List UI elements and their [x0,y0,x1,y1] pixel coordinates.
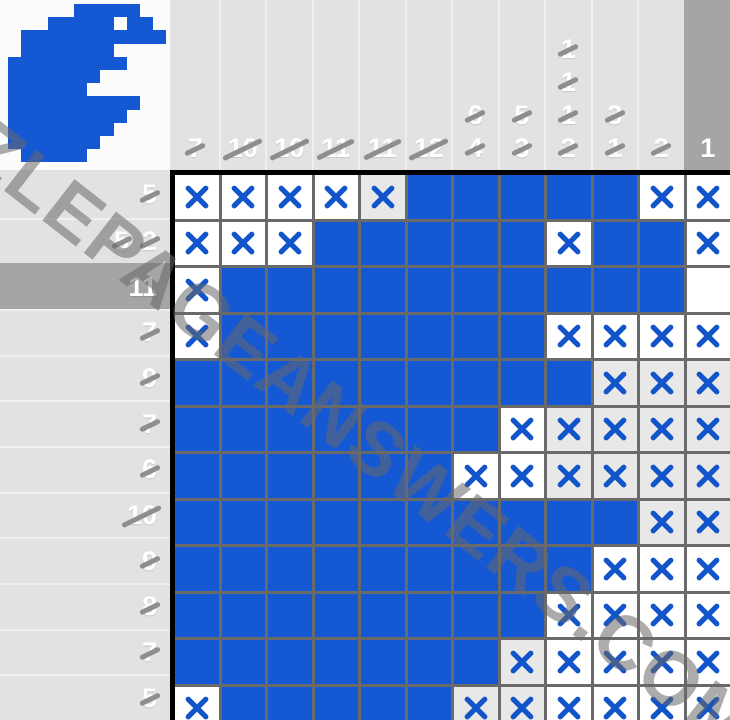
preview-pixel [74,83,87,96]
cell-r12-c6[interactable] [408,687,452,720]
cell-r12-c9[interactable] [547,687,591,720]
preview-pixel [61,83,74,96]
cell-r10-c3[interactable] [268,594,312,638]
x-mark-icon [600,321,630,351]
clue-number: 9 [142,548,157,575]
cell-r8-c6[interactable] [408,501,452,545]
preview-pixel [34,83,47,96]
cell-r8-c11[interactable] [640,501,684,545]
column-clue-4: 11 [312,0,359,170]
preview-pixel [8,136,21,149]
preview-pixel [34,96,47,109]
cell-r5-c3[interactable] [268,361,312,405]
cell-r5-c4[interactable] [315,361,359,405]
column-clue-11: 2 [637,0,684,170]
preview-pixel [21,44,34,57]
preview-pixel [114,4,127,17]
cell-r2-c12[interactable] [687,222,730,266]
cell-r3-c12[interactable] [687,268,730,312]
cell-r1-c6[interactable] [408,175,452,219]
preview-pixel [21,136,34,149]
cell-r6-c5[interactable] [361,408,405,452]
cell-r1-c8[interactable] [501,175,545,219]
preview-pixel [48,136,61,149]
cell-r5-c10[interactable] [594,361,638,405]
clue-number: 10 [228,135,258,162]
preview-pixel [48,123,61,136]
cell-r7-c10[interactable] [594,454,638,498]
x-mark-icon [461,461,491,491]
preview-pixel [21,30,34,43]
preview-pixel [114,110,127,123]
column-clue-7: 64 [451,0,498,170]
x-mark-icon [647,321,677,351]
clue-number: 1 [561,102,576,129]
cell-r7-c5[interactable] [361,454,405,498]
x-mark-icon [600,600,630,630]
cell-r8-c7[interactable] [454,501,498,545]
cell-r6-c6[interactable] [408,408,452,452]
cell-r5-c1[interactable] [175,361,219,405]
preview-pixel [100,123,113,136]
clue-number: 4 [468,135,483,162]
cell-r7-c1[interactable] [175,454,219,498]
cell-r7-c12[interactable] [687,454,730,498]
clue-number: 3 [607,102,622,129]
cell-r8-c10[interactable] [594,501,638,545]
cell-r4-c3[interactable] [268,315,312,359]
cell-r2-c10[interactable] [594,222,638,266]
row-clue-10: 8 [0,583,170,629]
cell-r12-c10[interactable] [594,687,638,720]
preview-pixel [74,149,87,162]
cell-r12-c8[interactable] [501,687,545,720]
preview-pixel [21,70,34,83]
preview-pixel [87,4,100,17]
preview-pixel [61,123,74,136]
preview-pixel [74,17,87,30]
cell-r3-c1[interactable] [175,268,219,312]
cell-r10-c11[interactable] [640,594,684,638]
preview-pixel [74,96,87,109]
x-mark-icon [554,321,584,351]
preview-pixel [8,110,21,123]
cell-r4-c7[interactable] [454,315,498,359]
cell-r9-c3[interactable] [268,547,312,591]
cell-r3-c2[interactable] [222,268,266,312]
cell-r2-c7[interactable] [454,222,498,266]
x-mark-icon [647,554,677,584]
clue-number: 8 [142,593,157,620]
x-mark-icon [693,182,723,212]
cell-r2-c8[interactable] [501,222,545,266]
cell-r5-c6[interactable] [408,361,452,405]
x-mark-icon [600,647,630,677]
row-clue-5: 9 [0,355,170,401]
cell-r6-c11[interactable] [640,408,684,452]
column-clue-1: 7 [172,0,219,170]
cell-r6-c2[interactable] [222,408,266,452]
cell-r3-c9[interactable] [547,268,591,312]
preview-pixel [100,30,113,43]
clue-number: 3 [514,135,529,162]
picture-cross-puzzle-screen: 71010111112645311123121 552117976109875 … [0,0,730,720]
preview-pixel [34,110,47,123]
cell-r12-c5[interactable] [361,687,405,720]
preview-pixel [140,17,153,30]
x-mark-icon [554,647,584,677]
preview-pixel [87,17,100,30]
cell-r8-c9[interactable] [547,501,591,545]
cell-r8-c12[interactable] [687,501,730,545]
preview-pixel [61,30,74,43]
cell-r10-c8[interactable] [501,594,545,638]
cell-r4-c1[interactable] [175,315,219,359]
clue-number: 7 [142,639,157,666]
clue-number: 9 [142,365,157,392]
preview-pixel [87,136,100,149]
preview-pixel [61,44,74,57]
cell-r4-c2[interactable] [222,315,266,359]
cell-r9-c1[interactable] [175,547,219,591]
clue-number: 11 [128,274,157,301]
cell-r7-c7[interactable] [454,454,498,498]
clue-number: 5 [142,685,157,712]
cell-r1-c9[interactable] [547,175,591,219]
cell-r11-c7[interactable] [454,640,498,684]
x-mark-icon [647,507,677,537]
cell-r11-c3[interactable] [268,640,312,684]
cell-r8-c8[interactable] [501,501,545,545]
cell-r2-c1[interactable] [175,222,219,266]
preview-pixel [34,57,47,70]
x-mark-icon [368,182,398,212]
column-clue-3: 10 [265,0,312,170]
x-mark-icon [693,461,723,491]
cell-r7-c9[interactable] [547,454,591,498]
clue-number: 7 [142,319,157,346]
x-mark-icon [228,182,258,212]
cell-r4-c6[interactable] [408,315,452,359]
row-clue-1: 5 [0,172,170,218]
cell-r9-c8[interactable] [501,547,545,591]
x-mark-icon [693,554,723,584]
preview-pixel [74,136,87,149]
cell-r12-c7[interactable] [454,687,498,720]
cell-r2-c9[interactable] [547,222,591,266]
cell-r8-c3[interactable] [268,501,312,545]
x-mark-icon [554,693,584,720]
x-mark-icon [647,461,677,491]
cell-r5-c8[interactable] [501,361,545,405]
cell-r11-c8[interactable] [501,640,545,684]
cell-r5-c7[interactable] [454,361,498,405]
cell-r8-c1[interactable] [175,501,219,545]
cell-r5-c11[interactable] [640,361,684,405]
cell-r3-c8[interactable] [501,268,545,312]
x-mark-icon [182,275,212,305]
cell-r10-c5[interactable] [361,594,405,638]
x-mark-icon [647,368,677,398]
cell-r11-c6[interactable] [408,640,452,684]
clue-number: 5 [514,102,529,129]
preview-pixel [48,57,61,70]
x-mark-icon [182,321,212,351]
cell-r12-c12[interactable] [687,687,730,720]
column-clue-6: 12 [405,0,452,170]
preview-pixel [100,96,113,109]
preview-pixel [34,136,47,149]
preview-pixel [21,57,34,70]
preview-pixel [100,110,113,123]
cell-r5-c5[interactable] [361,361,405,405]
cell-r9-c12[interactable] [687,547,730,591]
preview-pixel [48,96,61,109]
cell-r1-c4[interactable] [315,175,359,219]
cell-r4-c12[interactable] [687,315,730,359]
preview-pixel [74,57,87,70]
row-clues-header: 552117976109875 [0,172,170,720]
preview-pixel [74,4,87,17]
preview-pixel [127,4,140,17]
cell-r10-c7[interactable] [454,594,498,638]
cell-r10-c9[interactable] [547,594,591,638]
cell-r6-c7[interactable] [454,408,498,452]
cell-r5-c9[interactable] [547,361,591,405]
cell-r4-c4[interactable] [315,315,359,359]
cell-r2-c3[interactable] [268,222,312,266]
preview-pixel [61,136,74,149]
clue-number: 11 [321,135,350,162]
cell-r2-c11[interactable] [640,222,684,266]
cell-r9-c9[interactable] [547,547,591,591]
cell-r4-c8[interactable] [501,315,545,359]
preview-pixel [114,57,127,70]
cell-r12-c3[interactable] [268,687,312,720]
cell-r10-c1[interactable] [175,594,219,638]
cell-r4-c10[interactable] [594,315,638,359]
cell-r11-c9[interactable] [547,640,591,684]
clue-number: 1 [561,36,576,63]
cell-r6-c1[interactable] [175,408,219,452]
cell-r11-c12[interactable] [687,640,730,684]
column-clue-9: 1112 [544,0,591,170]
cell-r7-c2[interactable] [222,454,266,498]
cell-r4-c9[interactable] [547,315,591,359]
preview-pixel [114,96,127,109]
cell-r4-c5[interactable] [361,315,405,359]
x-mark-icon [600,461,630,491]
cell-r1-c7[interactable] [454,175,498,219]
cell-r10-c12[interactable] [687,594,730,638]
cell-r3-c10[interactable] [594,268,638,312]
column-clue-5: 11 [358,0,405,170]
cell-r2-c6[interactable] [408,222,452,266]
cell-r7-c6[interactable] [408,454,452,498]
cell-r11-c4[interactable] [315,640,359,684]
cell-r2-c5[interactable] [361,222,405,266]
preview-pixel [61,149,74,162]
cell-r9-c11[interactable] [640,547,684,591]
cell-r7-c4[interactable] [315,454,359,498]
preview-pixel [100,44,113,57]
preview-pixel [21,83,34,96]
preview-pixel [87,57,100,70]
cell-r12-c4[interactable] [315,687,359,720]
cell-r3-c5[interactable] [361,268,405,312]
cell-r3-c7[interactable] [454,268,498,312]
x-mark-icon [275,182,305,212]
preview-pixel [61,70,74,83]
preview-pixel [61,57,74,70]
cell-r4-c11[interactable] [640,315,684,359]
cell-r1-c10[interactable] [594,175,638,219]
row-clue-2: 52 [0,218,170,264]
cell-r8-c5[interactable] [361,501,405,545]
cell-r1-c12[interactable] [687,175,730,219]
x-mark-icon [693,507,723,537]
clue-number: 7 [142,411,157,438]
cell-r12-c1[interactable] [175,687,219,720]
x-mark-icon [321,182,351,212]
cell-r11-c5[interactable] [361,640,405,684]
cell-r11-c11[interactable] [640,640,684,684]
preview-pixel [34,123,47,136]
clue-number: 12 [414,135,444,162]
preview-pixel [48,44,61,57]
preview-pixel [48,30,61,43]
row-clue-11: 7 [0,629,170,675]
row-clue-9: 9 [0,537,170,583]
cell-r9-c2[interactable] [222,547,266,591]
cell-r7-c11[interactable] [640,454,684,498]
preview-pixel [21,110,34,123]
clue-number: 2 [654,135,669,162]
column-clues-header: 71010111112645311123121 [172,0,730,170]
preview-pixel [74,123,87,136]
preview-pixel [8,57,21,70]
cell-r6-c3[interactable] [268,408,312,452]
cell-r6-c10[interactable] [594,408,638,452]
x-mark-icon [182,693,212,720]
preview-pixel [87,30,100,43]
cell-r9-c5[interactable] [361,547,405,591]
x-mark-icon [647,600,677,630]
x-mark-icon [554,414,584,444]
clue-number: 5 [142,181,157,208]
x-mark-icon [693,321,723,351]
cell-r12-c11[interactable] [640,687,684,720]
cell-r9-c7[interactable] [454,547,498,591]
cell-r1-c11[interactable] [640,175,684,219]
cell-r2-c4[interactable] [315,222,359,266]
cell-r6-c12[interactable] [687,408,730,452]
clue-number: 10 [274,135,304,162]
column-clue-8: 53 [498,0,545,170]
cell-r9-c6[interactable] [408,547,452,591]
x-mark-icon [600,693,630,720]
x-mark-icon [600,368,630,398]
cell-r7-c8[interactable] [501,454,545,498]
cell-r1-c1[interactable] [175,175,219,219]
cell-r5-c2[interactable] [222,361,266,405]
preview-pixel [87,70,100,83]
column-clue-12: 1 [684,0,730,170]
x-mark-icon [182,228,212,258]
cell-r10-c6[interactable] [408,594,452,638]
cell-r1-c2[interactable] [222,175,266,219]
x-mark-icon [693,647,723,677]
cell-r3-c11[interactable] [640,268,684,312]
preview-pixel [87,44,100,57]
preview-pixel [8,70,21,83]
row-clue-3: 11 [0,263,170,309]
cell-r3-c4[interactable] [315,268,359,312]
cell-r2-c2[interactable] [222,222,266,266]
cell-r9-c4[interactable] [315,547,359,591]
clue-number: 7 [188,135,203,162]
x-mark-icon [554,228,584,258]
cell-r6-c8[interactable] [501,408,545,452]
cell-r7-c3[interactable] [268,454,312,498]
x-mark-icon [554,600,584,630]
cell-r3-c3[interactable] [268,268,312,312]
x-mark-icon [600,554,630,584]
preview-pixel [87,110,100,123]
row-clue-4: 7 [0,309,170,355]
cell-r10-c4[interactable] [315,594,359,638]
cell-r8-c2[interactable] [222,501,266,545]
x-mark-icon [693,693,723,720]
clue-number: 2 [142,228,157,255]
cell-r12-c2[interactable] [222,687,266,720]
preview-pixel [48,70,61,83]
cell-r1-c3[interactable] [268,175,312,219]
cell-r6-c9[interactable] [547,408,591,452]
cell-r3-c6[interactable] [408,268,452,312]
preview-pixel [114,30,127,43]
preview-pixel [21,123,34,136]
cell-r11-c10[interactable] [594,640,638,684]
cell-r9-c10[interactable] [594,547,638,591]
cell-r1-c5[interactable] [361,175,405,219]
x-mark-icon [554,461,584,491]
x-mark-icon [647,647,677,677]
cell-r8-c4[interactable] [315,501,359,545]
x-mark-icon [461,693,491,720]
x-mark-icon [693,228,723,258]
clue-number: 10 [127,502,157,529]
cell-r5-c12[interactable] [687,361,730,405]
cell-r10-c2[interactable] [222,594,266,638]
x-mark-icon [693,414,723,444]
clue-number: 1 [700,135,715,162]
clue-number: 1 [561,69,576,96]
cell-r10-c10[interactable] [594,594,638,638]
row-clue-6: 7 [0,400,170,446]
cell-r6-c4[interactable] [315,408,359,452]
preview-pixel [100,4,113,17]
preview-pixel [48,149,61,162]
cell-r11-c1[interactable] [175,640,219,684]
x-mark-icon [647,693,677,720]
x-mark-icon [182,182,212,212]
preview-pixel [74,44,87,57]
cell-r11-c2[interactable] [222,640,266,684]
x-mark-icon [507,693,537,720]
preview-pixel [21,96,34,109]
preview-pixel [61,17,74,30]
